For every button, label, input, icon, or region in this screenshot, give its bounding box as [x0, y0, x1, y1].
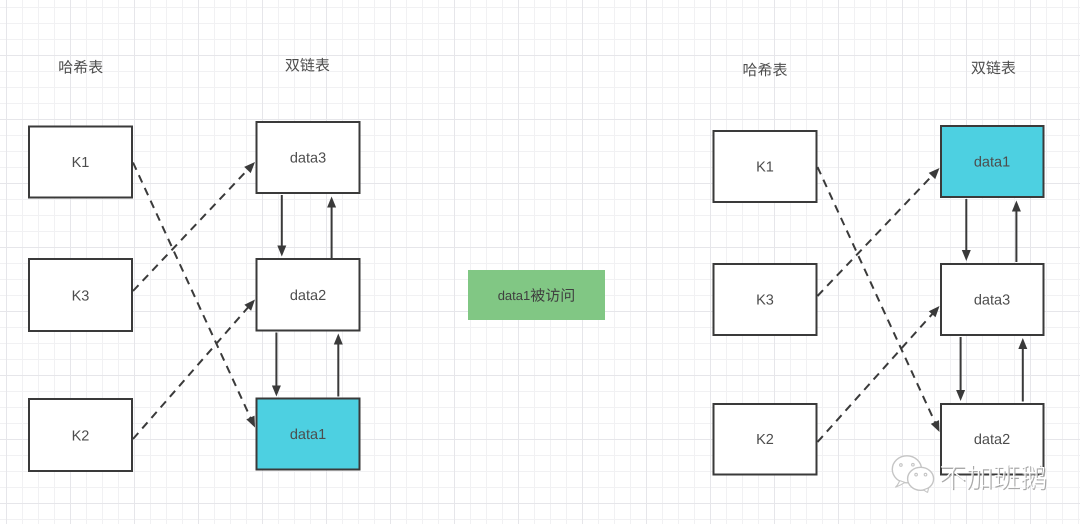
- svg-text:data1: data1: [974, 155, 1010, 171]
- svg-text:data3: data3: [290, 151, 326, 167]
- svg-text:data2: data2: [974, 432, 1010, 448]
- svg-text:K1: K1: [756, 160, 774, 176]
- svg-text:data1: data1: [290, 427, 326, 443]
- svg-text:K2: K2: [72, 429, 90, 445]
- svg-text:K2: K2: [756, 432, 774, 448]
- svg-text:data1: data1: [498, 288, 531, 303]
- svg-text:data3: data3: [974, 293, 1010, 309]
- svg-text:K3: K3: [72, 289, 90, 305]
- svg-text:data2: data2: [290, 288, 326, 304]
- svg-text:K3: K3: [756, 293, 774, 309]
- svg-text:K1: K1: [72, 155, 90, 171]
